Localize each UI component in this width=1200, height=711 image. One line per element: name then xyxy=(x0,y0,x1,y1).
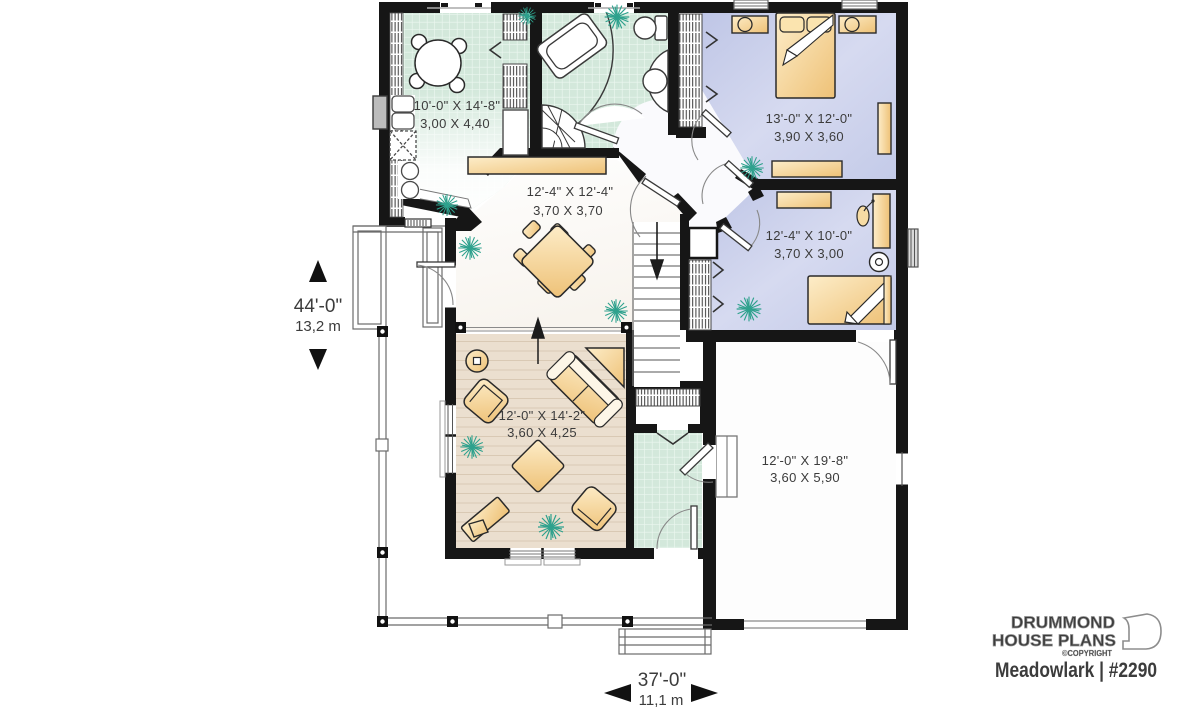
svg-text:3,60 X 4,25: 3,60 X 4,25 xyxy=(507,425,577,440)
svg-text:13,2 m: 13,2 m xyxy=(295,318,341,335)
svg-text:44'-0": 44'-0" xyxy=(294,296,342,317)
svg-text:3,70 X 3,70: 3,70 X 3,70 xyxy=(533,203,603,218)
svg-text:©COPYRIGHT: ©COPYRIGHT xyxy=(1062,649,1112,658)
svg-text:3,00 X 4,40: 3,00 X 4,40 xyxy=(420,116,490,131)
svg-text:12'-4" X 12'-4": 12'-4" X 12'-4" xyxy=(527,184,614,199)
svg-text:11,1 m: 11,1 m xyxy=(639,692,684,709)
svg-text:3,70 X 3,00: 3,70 X 3,00 xyxy=(774,246,844,261)
svg-text:12'-0" X 14'-2": 12'-0" X 14'-2" xyxy=(499,408,586,423)
svg-text:12'-4" X 10'-0": 12'-4" X 10'-0" xyxy=(766,228,853,243)
svg-text:13'-0" X 12'-0": 13'-0" X 12'-0" xyxy=(766,111,853,126)
svg-text:3,60 X 5,90: 3,60 X 5,90 xyxy=(770,470,840,485)
svg-text:10'-0" X 14'-8": 10'-0" X 14'-8" xyxy=(414,98,501,113)
svg-text:37'-0": 37'-0" xyxy=(638,670,686,691)
svg-text:12'-0" X 19'-8": 12'-0" X 19'-8" xyxy=(762,453,849,468)
svg-text:DRUMMOND: DRUMMOND xyxy=(1011,613,1115,632)
svg-text:HOUSE PLANS: HOUSE PLANS xyxy=(992,631,1116,650)
svg-text:3,90 X 3,60: 3,90 X 3,60 xyxy=(774,129,844,144)
svg-text:Meadowlark | #2290: Meadowlark | #2290 xyxy=(995,659,1157,682)
